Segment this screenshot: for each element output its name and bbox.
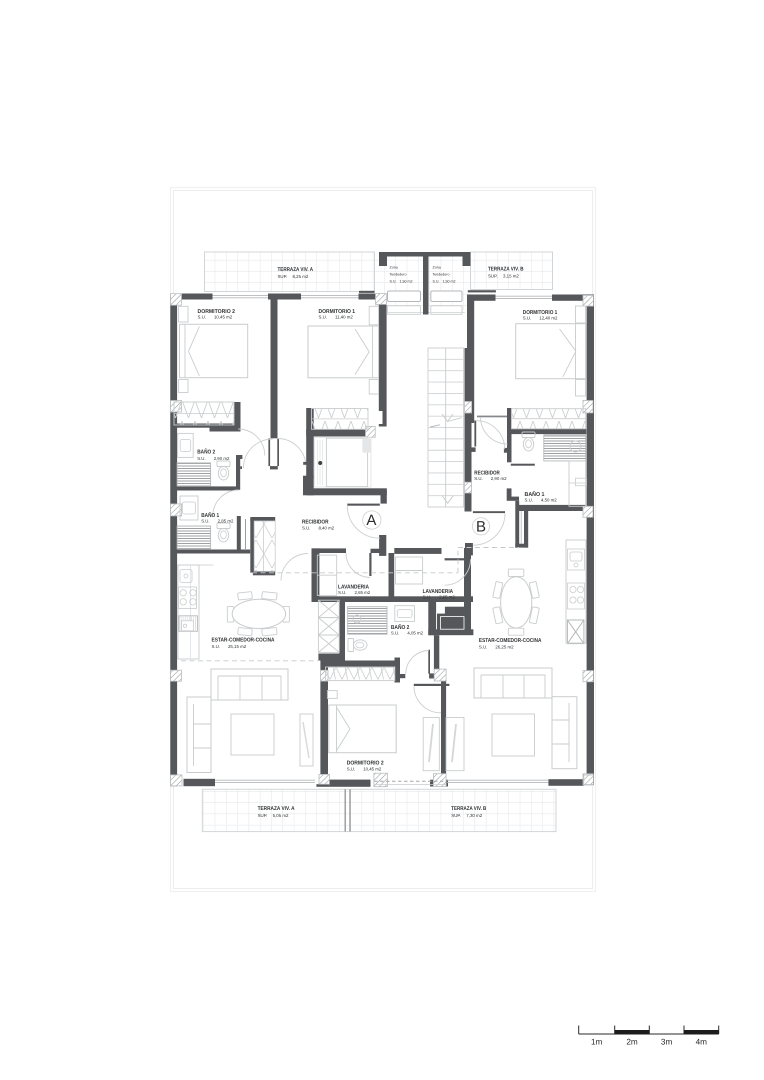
svg-text:S.U.1,50 m2: S.U.1,50 m2 — [433, 280, 456, 284]
svg-text:S.U.2,65 m2: S.U.2,65 m2 — [423, 595, 456, 600]
svg-text:1m: 1m — [591, 1038, 603, 1047]
svg-text:TERRAZA VIV. B: TERRAZA VIV. B — [488, 267, 524, 273]
svg-text:S.U.11,40 m2: S.U.11,40 m2 — [319, 315, 354, 320]
svg-text:Tendedero: Tendedero — [390, 273, 407, 277]
svg-text:S.U.10,45 m2: S.U.10,45 m2 — [347, 766, 382, 771]
svg-text:ESTAR-COMEDOR-COCINA: ESTAR-COMEDOR-COCINA — [479, 638, 542, 644]
svg-text:B: B — [476, 518, 486, 535]
svg-text:S.U.2,90 m2: S.U.2,90 m2 — [474, 476, 507, 481]
svg-text:Zona: Zona — [390, 266, 398, 270]
svg-text:S.U.26,25 m2: S.U.26,25 m2 — [479, 644, 514, 649]
svg-text:S.U.2,85 m2: S.U.2,85 m2 — [201, 519, 234, 524]
svg-text:S.U.8,40 m2: S.U.8,40 m2 — [302, 526, 335, 531]
svg-text:S.U.2,65 m2: S.U.2,65 m2 — [338, 590, 371, 595]
svg-text:TERRAZA VIV. A: TERRAZA VIV. A — [278, 267, 314, 273]
svg-text:BAÑO 2: BAÑO 2 — [197, 449, 215, 456]
svg-text:2m: 2m — [626, 1038, 638, 1047]
svg-text:Zona: Zona — [433, 266, 441, 270]
svg-text:TERRAZA VIV. B: TERRAZA VIV. B — [451, 806, 486, 812]
svg-text:TERRAZA VIV. A: TERRAZA VIV. A — [258, 806, 295, 812]
svg-text:S.U.1,50 m2: S.U.1,50 m2 — [390, 280, 413, 284]
svg-text:SUP.3,15 m2: SUP.3,15 m2 — [488, 273, 519, 278]
svg-text:4m: 4m — [696, 1038, 708, 1047]
svg-text:SUP.5,05 m2: SUP.5,05 m2 — [258, 813, 289, 818]
svg-text:S.U.12,40 m2: S.U.12,40 m2 — [523, 316, 558, 321]
svg-text:SUP.7,30 m2: SUP.7,30 m2 — [451, 813, 482, 818]
svg-text:3m: 3m — [661, 1038, 673, 1047]
svg-text:S.U.4,50 m2: S.U.4,50 m2 — [525, 498, 558, 503]
svg-text:S.U.2,90 m2: S.U.2,90 m2 — [197, 456, 230, 461]
svg-text:Tendedero: Tendedero — [433, 273, 450, 277]
svg-text:ESTAR-COMEDOR-COCINA: ESTAR-COMEDOR-COCINA — [212, 638, 275, 644]
svg-text:A: A — [366, 512, 376, 529]
svg-text:S.U.10,45 m2: S.U.10,45 m2 — [198, 315, 233, 320]
svg-text:S.U.25,15 m2: S.U.25,15 m2 — [212, 644, 247, 649]
svg-text:S.U.4,05 m2: S.U.4,05 m2 — [391, 631, 424, 636]
svg-text:SUP.6,25 m2: SUP.6,25 m2 — [278, 274, 309, 279]
